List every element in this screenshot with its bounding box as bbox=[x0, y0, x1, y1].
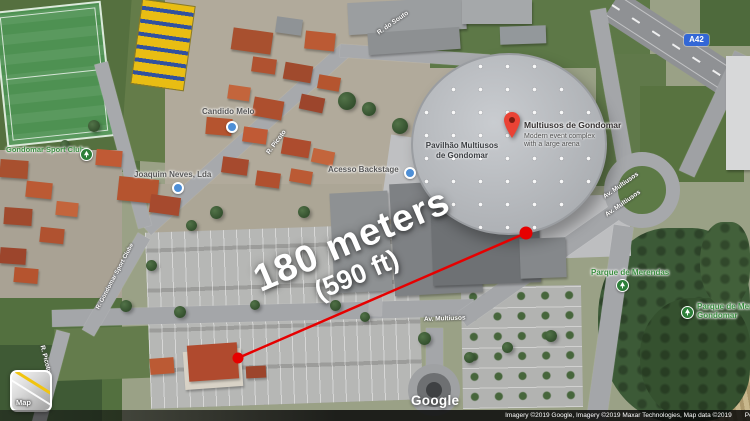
tree-shape bbox=[502, 342, 513, 353]
bld-shape bbox=[3, 207, 32, 226]
bld-shape bbox=[13, 267, 38, 284]
bld-shape bbox=[0, 159, 29, 179]
tree-shape bbox=[418, 332, 431, 345]
tree-shape bbox=[210, 206, 223, 219]
poi-candido-melo[interactable]: Candido Melo bbox=[202, 107, 254, 116]
bld-shape bbox=[255, 170, 281, 188]
wood-shape bbox=[700, 222, 750, 306]
poi-acesso-backstage[interactable]: Acesso Backstage bbox=[328, 165, 399, 174]
bld-shape bbox=[187, 342, 239, 381]
poi-joaquim-neves[interactable]: Joaquim Neves, Lda bbox=[134, 170, 211, 179]
road-label-av-multiusos-3: Av. Multiusos bbox=[424, 315, 466, 323]
tree-shape bbox=[464, 352, 475, 363]
bld-shape bbox=[246, 365, 267, 378]
park-pin-icon[interactable] bbox=[80, 148, 93, 161]
tree-shape bbox=[392, 118, 408, 134]
tree-shape bbox=[250, 300, 260, 310]
bld-shape bbox=[25, 181, 53, 200]
bld-shape bbox=[55, 201, 78, 217]
bld-shape bbox=[0, 247, 27, 265]
bld-shape bbox=[227, 85, 251, 102]
poi-line2: Gondomar bbox=[697, 311, 750, 320]
arena-label-line1: Pavilhão Multiusos bbox=[426, 141, 498, 150]
attribution-region: Portugal bbox=[745, 412, 750, 419]
rb2-shape bbox=[408, 364, 460, 416]
tree-shape bbox=[298, 206, 310, 218]
map-toggle-button[interactable]: Map bbox=[10, 370, 52, 412]
arena-label-line2: de Gondomar bbox=[436, 151, 488, 160]
tree-shape bbox=[360, 312, 370, 322]
poi-gondomar-sport-clube[interactable]: Gondomar Sport Clube bbox=[6, 145, 89, 154]
tree-shape bbox=[545, 330, 557, 342]
map-toggle-label: Map bbox=[16, 398, 31, 407]
bld-shape bbox=[242, 126, 268, 144]
bld-shape bbox=[149, 357, 174, 375]
bld-shape bbox=[95, 149, 122, 167]
attribution-text: Imagery ©2019 Google, Imagery ©2019 Maxa… bbox=[505, 412, 732, 419]
tree-shape bbox=[338, 92, 356, 110]
place-title: Multiusos de Gondomar bbox=[524, 120, 621, 130]
park-pin-icon[interactable] bbox=[681, 306, 694, 319]
tree-shape bbox=[120, 300, 132, 312]
bld-shape bbox=[275, 16, 303, 35]
tree-shape bbox=[146, 260, 157, 271]
poi-line1: Parque de Merendas bbox=[697, 302, 750, 311]
park-pin-icon[interactable] bbox=[616, 279, 629, 292]
tree-shape bbox=[88, 120, 100, 132]
place-subtitle-1: Modern event complex bbox=[524, 133, 621, 141]
bld-shape bbox=[39, 227, 64, 244]
route-shield-a42: A42 bbox=[684, 34, 709, 46]
business-dot-icon[interactable] bbox=[172, 182, 184, 194]
google-watermark: Google bbox=[411, 393, 459, 408]
bld-shape bbox=[519, 237, 566, 279]
place-label[interactable]: Multiusos de Gondomar Modern event compl… bbox=[524, 115, 621, 149]
attribution-bar: Imagery ©2019 Google, Imagery ©2019 Maxa… bbox=[0, 410, 750, 421]
place-subtitle-2: with a large arena bbox=[524, 141, 621, 149]
poi-parque-merendas-gondomar[interactable]: Parque de Merendas Gondomar bbox=[697, 302, 750, 320]
bld-shape bbox=[251, 56, 277, 74]
bld-shape bbox=[304, 30, 336, 51]
bld-shape bbox=[726, 56, 750, 170]
tree-shape bbox=[174, 306, 186, 318]
bld-shape bbox=[462, 0, 532, 24]
tree-shape bbox=[362, 102, 376, 116]
bld-shape bbox=[221, 156, 249, 175]
business-dot-icon[interactable] bbox=[226, 121, 238, 133]
business-dot-icon[interactable] bbox=[404, 167, 416, 179]
poi-parque-merendas[interactable]: Parque de Merendas bbox=[591, 268, 669, 277]
bld-shape bbox=[500, 25, 547, 45]
tree-shape bbox=[186, 220, 197, 231]
place-pin-icon[interactable] bbox=[504, 112, 520, 138]
arena-label[interactable]: Pavilhão Multiusos de Gondomar bbox=[414, 141, 510, 160]
map-canvas[interactable]: Pavilhão Multiusos de Gondomar Multiusos… bbox=[0, 0, 750, 421]
